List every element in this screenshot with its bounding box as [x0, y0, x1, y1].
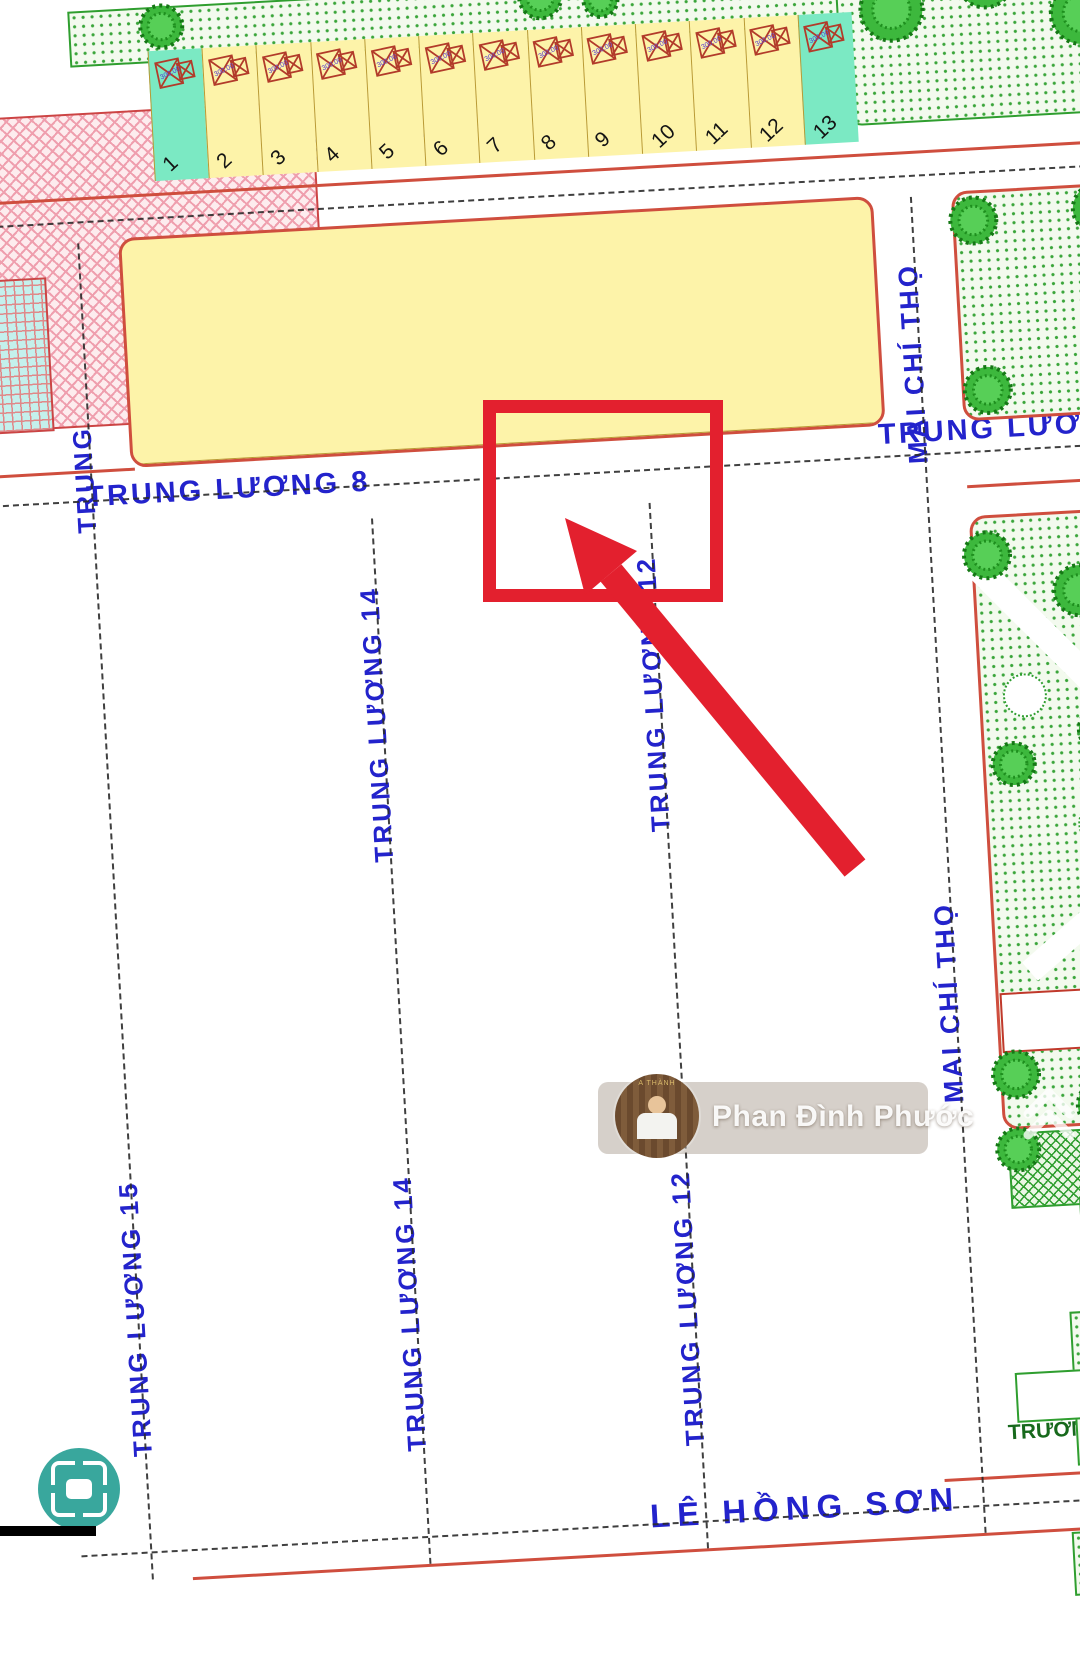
double-chevron-icon[interactable]: [1018, 1080, 1080, 1144]
screenshot-button[interactable]: [38, 1448, 120, 1530]
watermark-avatar: A THÀNH: [615, 1074, 699, 1158]
avatar-text: A THÀNH: [615, 1080, 699, 1087]
watermark-name: Phan Đình Phước: [712, 1100, 974, 1134]
bottom-black-strip: [0, 1526, 96, 1536]
annotation-arrow: [0, 0, 1080, 1536]
photo-icon: [66, 1479, 92, 1499]
